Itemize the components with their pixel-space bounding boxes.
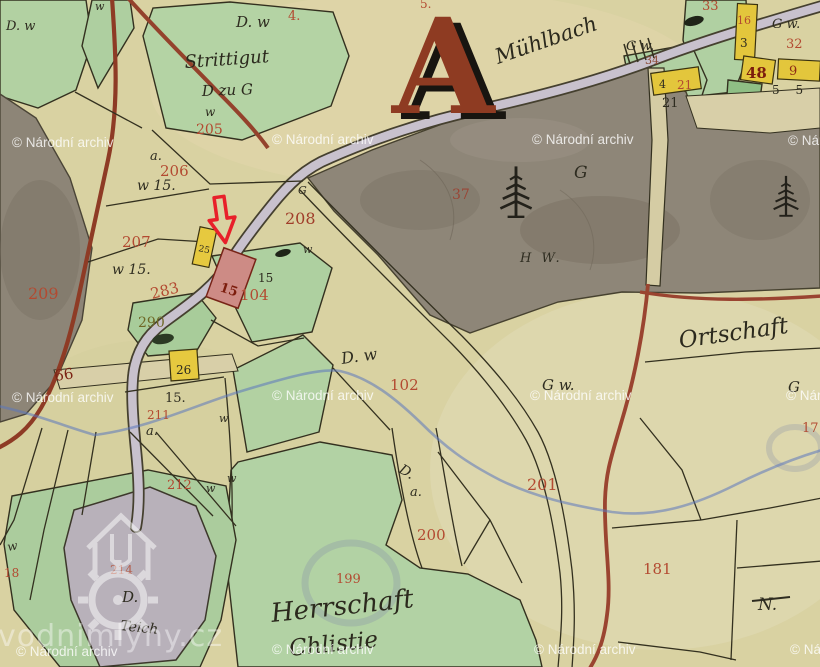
parcel-number-209: 209 [28, 284, 59, 303]
w-mark: w [206, 482, 216, 495]
gw-mark: G w. [626, 39, 654, 54]
watermark-archive: © Národní archiv [272, 388, 374, 403]
parcel-number-207: 207 [122, 233, 151, 251]
w-mark: w [303, 243, 313, 256]
w-mark: w [227, 472, 237, 485]
w-mark: w [205, 105, 216, 119]
watermark-archive: © Národní archiv [12, 135, 114, 150]
watermark-archive: © Národní archiv [788, 133, 820, 148]
watermark-site: vodnimlyny.cz [0, 619, 223, 654]
watermark-archive: © Národní archiv [272, 132, 374, 147]
watermark-archive: © Národní archiv [786, 388, 820, 403]
parcel-number-104: 104 [240, 286, 269, 304]
gw-mark: G w. [772, 17, 800, 32]
number-26: 26 [176, 363, 191, 377]
number-3: 3 [740, 36, 748, 50]
parcel-number-16: 16 [737, 14, 751, 27]
parcel-number-18: 18 [4, 566, 19, 580]
w15-mark: w 15. [137, 178, 176, 194]
watermark-archive: © Národní archiv [790, 642, 820, 657]
parcel-number-208: 208 [285, 209, 316, 228]
parcel-number-17: 17 [802, 421, 819, 436]
parcel-number-211: 211 [147, 408, 170, 422]
pond-d-mark: D. [121, 588, 138, 606]
parcel-number-200: 200 [417, 526, 446, 544]
parcel-number-181: 181 [643, 560, 672, 578]
parcel-number-212: 212 [167, 478, 192, 493]
d-zu-g-label: D zu G [201, 80, 254, 100]
number-5-5: 5 5 [772, 83, 809, 97]
hw-mark: H W. [519, 251, 563, 266]
parcel-number-33: 33 [702, 0, 719, 14]
number-4: 4 [659, 78, 666, 91]
parcel-number-205: 205 [196, 122, 223, 138]
g-mark: G [298, 184, 307, 197]
watermark-archive: © Národní archiv [534, 642, 636, 657]
logo-gear-hub [113, 595, 123, 605]
watermark-archive: © Národní archiv [532, 132, 634, 147]
building-wood-9 [778, 59, 820, 81]
parcel-number-32: 32 [786, 37, 803, 52]
dw-mark: D. w [235, 13, 270, 31]
number-21: 21 [662, 96, 679, 111]
parcel-number-37: 37 [452, 187, 470, 203]
watermark-archive: © Národní archiv [272, 642, 374, 657]
parcel-number-199: 199 [336, 572, 361, 587]
parcel-number-290: 290 [138, 315, 165, 331]
number-15: 15. [165, 391, 186, 406]
watermark-archive: © Národní archiv [12, 390, 114, 405]
g-mark: G [574, 163, 588, 183]
section-letter-main: A [390, 0, 496, 145]
parcel-number-34: 34 [645, 54, 659, 67]
parcel-number-4: 4. [288, 9, 300, 24]
a-mark: a. [410, 485, 422, 500]
a-mark: a. [146, 424, 158, 439]
w15-mark: w 15. [112, 262, 151, 278]
parcel-number-102: 102 [390, 376, 419, 394]
cadastral-map: 4. 5. 205 206 207 208 209 283 290 104 10… [0, 0, 820, 667]
section-letter: A A [390, 0, 506, 151]
dw-mark: D. w [5, 19, 35, 34]
parcel-number-21: 21 [677, 78, 692, 92]
w-mark: w [219, 412, 229, 425]
parcel-number-9: 9 [789, 64, 797, 79]
number-15: 15 [258, 271, 273, 285]
a-mark: a. [150, 149, 162, 164]
watermark-archive: © Národní archiv [530, 388, 632, 403]
parcel-number-48: 48 [746, 64, 767, 82]
map-canvas[interactable]: 4. 5. 205 206 207 208 209 283 290 104 10… [0, 0, 820, 667]
building-wood-16 [735, 4, 758, 61]
parcel-number-201: 201 [527, 475, 558, 494]
w-mark: w [95, 0, 105, 13]
parcel-number-66: 66 [53, 364, 74, 384]
